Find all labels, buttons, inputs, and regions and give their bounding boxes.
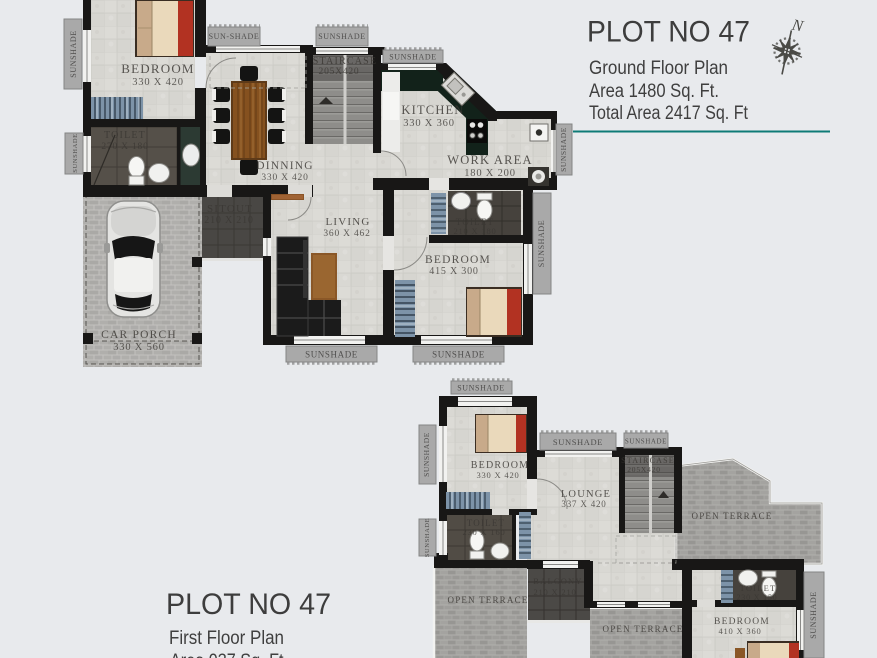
svg-text:SITOUT: SITOUT [207,203,253,215]
svg-text:205X420: 205X420 [319,67,360,77]
svg-text:210 X 210: 210 X 210 [204,215,253,226]
svg-text:270 X 180: 270 X 180 [101,142,148,152]
svg-text:Area 1480 Sq. Ft.: Area 1480 Sq. Ft. [589,81,719,102]
svg-text:SUNSHADE: SUNSHADE [72,133,79,172]
svg-text:SUNSHADE: SUNSHADE [809,591,818,638]
svg-text:330 X 360: 330 X 360 [403,118,455,129]
svg-text:180 X 200: 180 X 200 [464,168,516,179]
svg-text:OPEN TERRACE: OPEN TERRACE [692,511,773,521]
svg-text:SUNSHADE: SUNSHADE [389,53,436,62]
svg-text:CAR PORCH: CAR PORCH [101,329,177,341]
svg-text:STAIRCASE: STAIRCASE [313,56,377,67]
svg-text:KITCHEN: KITCHEN [401,103,464,117]
svg-text:SUNSHADE: SUNSHADE [432,350,485,360]
svg-text:Area 937 Sq. Ft.: Area 937 Sq. Ft. [170,651,288,658]
svg-text:330 X 560: 330 X 560 [113,342,165,353]
svg-text:SUNSHADE: SUNSHADE [553,437,603,447]
svg-text:SUNSHADE: SUNSHADE [559,127,568,172]
svg-text:SUNSHADE: SUNSHADE [537,220,546,267]
svg-text:360 X 462: 360 X 462 [323,229,370,239]
svg-text:SUN-SHADE: SUN-SHADE [209,32,260,41]
svg-text:WORK AREA: WORK AREA [447,153,532,167]
svg-text:337 X 420: 337 X 420 [561,499,606,509]
svg-text:TOILET: TOILET [104,130,146,141]
svg-text:SUNSHADE: SUNSHADE [69,30,78,77]
svg-text:BEDROOM: BEDROOM [425,254,491,266]
svg-text:STAIRCASE: STAIRCASE [621,456,675,465]
svg-text:330 X 420: 330 X 420 [132,77,184,88]
svg-text:TOILET: TOILET [740,583,777,593]
svg-text:PLOT NO 47: PLOT NO 47 [166,588,331,621]
svg-text:330 X 420: 330 X 420 [261,173,308,183]
svg-text:First Floor Plan: First Floor Plan [169,628,284,649]
svg-text:SUNSHADE: SUNSHADE [625,438,667,446]
svg-text:LIVING: LIVING [325,216,370,228]
svg-text:410 X 360: 410 X 360 [718,626,761,636]
svg-text:DINNING: DINNING [256,160,314,172]
svg-text:PLOT NO 47: PLOT NO 47 [587,16,750,49]
svg-text:SUNSHADE: SUNSHADE [318,32,365,41]
svg-text:SUNSHADE: SUNSHADE [424,518,431,557]
svg-text:Total Area 2417 Sq. Ft: Total Area 2417 Sq. Ft [589,103,749,124]
svg-text:SUNSHADE: SUNSHADE [305,350,358,360]
svg-text:230 X 150: 230 X 150 [737,593,778,602]
svg-text:210 X 210: 210 X 210 [533,587,576,597]
svg-text:415 X 300: 415 X 300 [429,266,478,277]
svg-text:205X420: 205X420 [627,465,661,474]
svg-text:BALCONY: BALCONY [533,576,583,586]
svg-text:OPEN TERRACE: OPEN TERRACE [603,624,684,634]
svg-text:Ground Floor Plan: Ground Floor Plan [589,58,728,79]
svg-text:SUNSHADE: SUNSHADE [457,384,504,393]
svg-text:OPEN TERRACE: OPEN TERRACE [448,595,529,605]
svg-text:210 X 180: 210 X 180 [453,226,496,236]
svg-text:SUNSHADE: SUNSHADE [422,432,431,477]
svg-text:230 X 160: 230 X 160 [462,527,505,537]
svg-text:330 X 420: 330 X 420 [476,470,519,480]
svg-text:BEDROOM: BEDROOM [121,61,194,76]
